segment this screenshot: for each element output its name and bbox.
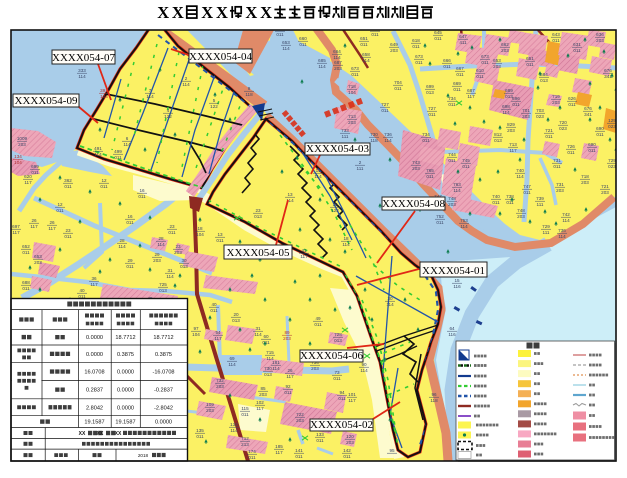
svg-text:011: 011 [567, 150, 575, 155]
svg-text:185: 185 [275, 444, 283, 449]
svg-text:011: 011 [210, 308, 218, 313]
svg-text:26: 26 [31, 218, 37, 223]
svg-text:011: 011 [552, 38, 560, 43]
svg-text:011: 011 [443, 64, 451, 69]
svg-text:XXXX054-09: XXXX054-09 [15, 95, 78, 107]
svg-text:16: 16 [127, 214, 133, 219]
svg-text:0.0000: 0.0000 [155, 420, 172, 426]
svg-text:203: 203 [556, 188, 564, 193]
svg-text:116: 116 [453, 284, 461, 289]
svg-text:20: 20 [233, 312, 239, 317]
svg-text:X: X [245, 3, 257, 22]
svg-text:011: 011 [343, 454, 351, 459]
svg-text:011: 011 [568, 102, 576, 107]
svg-text:731: 731 [556, 182, 564, 187]
svg-text:701: 701 [522, 108, 530, 113]
svg-text:011: 011 [241, 412, 249, 417]
svg-text:30: 30 [181, 258, 187, 263]
svg-text:181: 181 [272, 360, 280, 365]
svg-text:114: 114 [118, 244, 126, 249]
svg-text:117: 117 [48, 226, 56, 231]
svg-text:117: 117 [12, 230, 20, 235]
svg-text:011: 011 [276, 32, 284, 37]
svg-text:117: 117 [348, 398, 356, 403]
svg-text:651: 651 [526, 56, 534, 61]
svg-text:011: 011 [299, 42, 307, 47]
svg-text:740: 740 [492, 194, 500, 199]
svg-text:011: 011 [196, 434, 204, 439]
svg-text:203: 203 [552, 100, 560, 105]
svg-text:660: 660 [299, 36, 307, 41]
svg-text:011: 011 [284, 390, 292, 395]
svg-text:713: 713 [348, 114, 356, 119]
svg-text:0.3875: 0.3875 [155, 352, 172, 358]
svg-text:718: 718 [581, 174, 589, 179]
svg-text:712: 712 [241, 436, 249, 441]
svg-text:411: 411 [459, 40, 467, 45]
svg-text:688: 688 [22, 280, 30, 285]
svg-text:31: 31 [255, 326, 261, 331]
svg-text:114: 114 [386, 302, 394, 307]
svg-text:203: 203 [18, 142, 26, 147]
svg-text:26: 26 [49, 220, 55, 225]
svg-text:114: 114 [360, 368, 368, 373]
svg-text:18.7712: 18.7712 [115, 335, 135, 341]
svg-text:647: 647 [459, 34, 467, 39]
svg-text:699: 699 [426, 84, 434, 89]
svg-text:744: 744 [448, 152, 456, 157]
svg-text:011: 011 [394, 86, 402, 91]
svg-text:96: 96 [431, 392, 437, 397]
svg-text:704: 704 [394, 80, 402, 85]
svg-text:203: 203 [259, 392, 267, 397]
svg-text:651: 651 [360, 36, 368, 41]
svg-text:341: 341 [584, 112, 592, 117]
svg-text:41: 41 [301, 248, 307, 253]
svg-text:60: 60 [263, 334, 269, 339]
svg-text:011: 011 [453, 87, 461, 92]
svg-text:011: 011 [114, 155, 122, 160]
svg-text:013: 013 [264, 372, 272, 377]
svg-text:0.0000: 0.0000 [86, 352, 103, 358]
svg-text:013: 013 [232, 318, 240, 323]
svg-text:111: 111 [543, 230, 550, 235]
svg-text:X: X [157, 3, 169, 22]
svg-text:636: 636 [596, 32, 604, 37]
svg-text:114: 114 [228, 362, 236, 367]
svg-text:011: 011 [126, 220, 134, 225]
svg-text:118: 118 [245, 92, 253, 97]
svg-text:28: 28 [158, 236, 164, 241]
svg-text:013: 013 [180, 264, 188, 269]
svg-text:114: 114 [94, 152, 102, 157]
svg-text:731: 731 [553, 158, 561, 163]
svg-text:117: 117 [275, 450, 283, 455]
svg-text:203: 203 [153, 258, 161, 263]
svg-text:XXXX054-06: XXXX054-06 [300, 350, 363, 362]
svg-text:011: 011 [22, 286, 30, 291]
svg-text:174: 174 [248, 449, 256, 454]
svg-text:720: 720 [559, 120, 567, 125]
svg-text:2.8042: 2.8042 [86, 405, 103, 411]
svg-text:203: 203 [581, 180, 589, 185]
svg-text:715: 715 [266, 350, 274, 355]
svg-text:011: 011 [448, 102, 456, 107]
svg-text:669: 669 [453, 81, 461, 86]
svg-text:117: 117 [30, 224, 38, 229]
svg-text:XXXX054-01: XXXX054-01 [422, 265, 485, 277]
svg-text:812: 812 [494, 132, 502, 137]
svg-text:12: 12 [101, 178, 107, 183]
svg-text:109: 109 [206, 402, 214, 407]
svg-text:011: 011 [100, 184, 108, 189]
svg-text:673: 673 [481, 54, 489, 59]
svg-text:011: 011 [476, 74, 484, 79]
svg-text:95: 95 [389, 448, 395, 453]
svg-text:740: 740 [516, 168, 524, 173]
svg-text:122: 122 [210, 104, 218, 109]
svg-text:742: 742 [562, 212, 570, 217]
svg-text:19.1587: 19.1587 [115, 420, 135, 426]
svg-text:203: 203 [522, 114, 530, 119]
svg-text:753: 753 [460, 218, 468, 223]
svg-text:729: 729 [608, 158, 616, 163]
svg-text:117: 117 [256, 406, 264, 411]
svg-text:748: 748 [448, 196, 456, 201]
svg-text:011: 011 [295, 454, 303, 459]
svg-text:011: 011 [434, 36, 442, 41]
svg-text:0.0000: 0.0000 [117, 405, 134, 411]
svg-text:114: 114 [182, 82, 190, 87]
svg-text:499: 499 [114, 149, 122, 154]
svg-text:117: 117 [286, 374, 294, 379]
svg-text:011: 011 [512, 102, 520, 107]
svg-text:690: 690 [596, 126, 604, 131]
svg-text:16.0708: 16.0708 [84, 370, 104, 376]
svg-text:XXXX054-02: XXXX054-02 [310, 419, 373, 431]
svg-text:114: 114 [453, 188, 461, 193]
svg-text:023: 023 [608, 164, 616, 169]
svg-text:011: 011 [448, 158, 456, 163]
svg-text:114: 114 [502, 110, 510, 115]
svg-text:0.0000: 0.0000 [86, 335, 103, 341]
svg-text:0.2837: 0.2837 [86, 388, 103, 394]
svg-text:29: 29 [154, 252, 160, 257]
svg-text:011: 011 [481, 60, 489, 65]
svg-text:011: 011 [22, 250, 30, 255]
svg-text:19.1587: 19.1587 [84, 420, 104, 426]
svg-text:117: 117 [300, 254, 308, 259]
svg-text:491: 491 [94, 146, 102, 151]
svg-text:673: 673 [415, 54, 423, 59]
svg-text:XXXX054-07: XXXX054-07 [52, 52, 115, 64]
svg-text:111: 111 [342, 134, 349, 139]
svg-text:104: 104 [192, 332, 200, 337]
svg-text:203: 203 [334, 66, 342, 71]
svg-text:763: 763 [453, 182, 461, 187]
svg-text:667: 667 [456, 66, 464, 71]
svg-text:15: 15 [332, 202, 338, 207]
svg-text:XX: XX [115, 431, 122, 437]
svg-text:114: 114 [314, 174, 322, 179]
svg-text:011: 011 [506, 200, 514, 205]
svg-text:13: 13 [217, 232, 223, 237]
svg-text:743: 743 [412, 160, 420, 165]
svg-text:7: 7 [149, 88, 152, 93]
svg-text:013: 013 [494, 138, 502, 143]
svg-text:13: 13 [287, 192, 293, 197]
svg-text:203: 203 [517, 214, 525, 219]
svg-text:49: 49 [315, 316, 321, 321]
svg-text:97: 97 [193, 326, 199, 331]
svg-text:X: X [260, 3, 272, 22]
svg-text:203: 203 [596, 38, 604, 43]
svg-text:40: 40 [79, 288, 85, 293]
svg-text:203: 203 [448, 202, 456, 207]
svg-text:011: 011 [428, 112, 436, 117]
svg-text:734: 734 [422, 132, 430, 137]
svg-text:28: 28 [119, 238, 125, 243]
svg-text:698: 698 [502, 104, 510, 109]
svg-text:36: 36 [91, 276, 97, 281]
svg-text:114: 114 [318, 64, 326, 69]
svg-text:134: 134 [14, 154, 22, 159]
svg-text:9: 9 [248, 86, 251, 91]
svg-text:X: X [172, 3, 184, 22]
svg-text:23: 23 [65, 228, 71, 233]
svg-text:685: 685 [318, 58, 326, 63]
svg-text:203: 203 [346, 440, 354, 445]
svg-text:118: 118 [430, 398, 438, 403]
svg-text:719: 719 [552, 94, 560, 99]
svg-text:114: 114 [460, 224, 468, 229]
svg-text:713: 713 [509, 142, 517, 147]
svg-text:011: 011 [31, 170, 39, 175]
svg-text:203: 203 [311, 366, 319, 371]
svg-text:114: 114 [272, 366, 280, 371]
svg-text:114: 114 [342, 242, 350, 247]
svg-text:18: 18 [197, 226, 203, 231]
svg-text:023: 023 [536, 114, 544, 119]
svg-text:203: 203 [296, 418, 304, 423]
svg-text:011: 011 [492, 200, 500, 205]
svg-text:011: 011 [526, 62, 534, 67]
svg-text:120: 120 [346, 434, 354, 439]
svg-text:114: 114 [230, 428, 238, 433]
svg-text:117: 117 [467, 94, 475, 99]
svg-text:362: 362 [64, 178, 72, 183]
svg-text:011: 011 [415, 60, 423, 65]
svg-text:102: 102 [256, 400, 264, 405]
svg-text:104: 104 [14, 160, 22, 165]
svg-text:738: 738 [506, 194, 514, 199]
svg-text:203: 203 [34, 260, 42, 265]
svg-text:652: 652 [22, 244, 30, 249]
svg-text:2018: 2018 [138, 453, 149, 458]
svg-text:114: 114 [282, 46, 290, 51]
svg-text:203: 203 [507, 128, 515, 133]
svg-text:203: 203 [206, 408, 214, 413]
svg-text:92: 92 [285, 384, 291, 389]
svg-text:013: 013 [159, 288, 167, 293]
svg-text:745: 745 [462, 158, 470, 163]
svg-text:011: 011 [462, 164, 470, 169]
svg-text:726: 726 [567, 144, 575, 149]
svg-text:023: 023 [559, 126, 567, 131]
svg-text:114: 114 [254, 332, 262, 337]
svg-text:114: 114 [123, 142, 131, 147]
svg-text:690: 690 [588, 142, 596, 147]
svg-text:12: 12 [57, 202, 63, 207]
svg-text:747: 747 [523, 184, 531, 189]
svg-text:013: 013 [426, 90, 434, 95]
svg-text:736: 736 [558, 228, 566, 233]
svg-text:653: 653 [282, 40, 290, 45]
svg-text:64: 64 [449, 326, 455, 331]
svg-text:011: 011 [553, 164, 561, 169]
svg-text:697: 697 [12, 224, 20, 229]
svg-text:011: 011 [426, 174, 434, 179]
svg-text:733: 733 [341, 128, 349, 133]
svg-text:703: 703 [536, 108, 544, 113]
svg-text:765: 765 [426, 168, 434, 173]
svg-text:203: 203 [412, 166, 420, 171]
svg-text:XXXX054-03: XXXX054-03 [306, 143, 369, 155]
svg-text:643: 643 [552, 32, 560, 37]
svg-text:727: 727 [381, 102, 389, 107]
svg-text:30: 30 [387, 296, 393, 301]
svg-text:XX: XX [79, 431, 86, 437]
svg-text:5: 5 [213, 98, 216, 103]
svg-text:689: 689 [505, 88, 513, 93]
svg-text:4: 4 [167, 108, 170, 113]
svg-text:687: 687 [334, 60, 342, 65]
svg-text:135: 135 [196, 428, 204, 433]
svg-text:94: 94 [339, 390, 345, 395]
svg-text:011: 011 [314, 322, 322, 327]
svg-text:26: 26 [287, 368, 293, 373]
svg-text:X: X [216, 3, 228, 22]
svg-text:-16.0708: -16.0708 [152, 370, 174, 376]
svg-text:752: 752 [436, 214, 444, 219]
svg-text:40: 40 [211, 302, 217, 307]
svg-text:725: 725 [159, 282, 167, 287]
svg-text:011: 011 [64, 234, 72, 239]
svg-text:730: 730 [370, 132, 378, 137]
svg-text:626: 626 [568, 96, 576, 101]
svg-text:0.0000: 0.0000 [117, 388, 134, 394]
svg-text:696: 696 [512, 96, 520, 101]
svg-text:653: 653 [493, 58, 501, 63]
svg-text:23: 23 [255, 208, 261, 213]
svg-text:0.0000: 0.0000 [117, 370, 134, 376]
svg-text:0.3875: 0.3875 [117, 352, 134, 358]
svg-text:631: 631 [573, 42, 581, 47]
svg-text:203: 203 [174, 250, 182, 255]
svg-text:649: 649 [390, 42, 398, 47]
svg-text:122: 122 [164, 114, 172, 119]
svg-text:54: 54 [215, 330, 221, 335]
svg-text:727: 727 [428, 106, 436, 111]
svg-text:011: 011 [573, 48, 581, 53]
svg-text:664: 664 [333, 49, 341, 54]
svg-text:1009: 1009 [17, 136, 28, 141]
svg-text:203: 203 [390, 48, 398, 53]
svg-text:011: 011 [351, 72, 359, 77]
svg-text:-0.2837: -0.2837 [154, 388, 173, 394]
svg-text:73: 73 [334, 370, 340, 375]
svg-text:X: X [201, 3, 213, 22]
svg-text:203: 203 [348, 120, 356, 125]
svg-text:114: 114 [166, 274, 174, 279]
svg-text:333: 333 [78, 68, 86, 73]
svg-text:134: 134 [230, 422, 238, 427]
svg-text:104: 104 [348, 90, 356, 95]
svg-text:90: 90 [361, 362, 367, 367]
svg-text:011: 011 [216, 238, 224, 243]
svg-text:722: 722 [296, 412, 304, 417]
svg-text:122: 122 [331, 208, 339, 213]
svg-text:2: 2 [185, 76, 188, 81]
svg-text:620: 620 [24, 174, 32, 179]
svg-text:203: 203 [501, 48, 509, 53]
svg-text:117: 117 [214, 336, 222, 341]
svg-text:2: 2 [359, 160, 362, 165]
svg-text:117: 117 [509, 148, 517, 153]
svg-text:203: 203 [283, 336, 291, 341]
svg-text:XXXX054-05: XXXX054-05 [227, 247, 290, 259]
svg-text:104: 104 [100, 94, 108, 99]
svg-text:011: 011 [168, 230, 176, 235]
svg-text:6: 6 [126, 136, 129, 141]
svg-text:011: 011 [422, 138, 430, 143]
svg-text:115: 115 [241, 406, 249, 411]
svg-text:23: 23 [175, 244, 181, 249]
svg-text:133: 133 [316, 432, 324, 437]
svg-text:16: 16 [139, 188, 145, 193]
svg-text:203: 203 [216, 384, 224, 389]
svg-text:666: 666 [443, 58, 451, 63]
svg-text:013: 013 [540, 78, 548, 83]
svg-text:734: 734 [448, 96, 456, 101]
svg-text:011: 011 [456, 72, 464, 77]
svg-text:736: 736 [384, 132, 392, 137]
svg-text:011: 011 [523, 190, 531, 195]
svg-text:118: 118 [370, 138, 378, 143]
svg-text:114: 114 [157, 242, 165, 247]
svg-text:114: 114 [362, 58, 370, 63]
svg-text:142: 142 [343, 448, 351, 453]
svg-text:011: 011 [545, 134, 553, 139]
svg-text:15: 15 [454, 278, 460, 283]
svg-text:29: 29 [127, 258, 133, 263]
svg-text:69: 69 [229, 356, 235, 361]
svg-text:XXXX054-04: XXXX054-04 [189, 51, 252, 63]
svg-text:013: 013 [334, 338, 342, 343]
svg-text:829: 829 [507, 122, 515, 127]
svg-text:662: 662 [501, 42, 509, 47]
svg-text:XXXX054-08: XXXX054-08 [382, 198, 445, 210]
svg-text:85: 85 [260, 386, 266, 391]
svg-text:610: 610 [476, 68, 484, 73]
svg-text:116: 116 [448, 332, 456, 337]
svg-text:618: 618 [412, 38, 420, 43]
svg-text:011: 011 [596, 132, 604, 137]
svg-text:011: 011 [126, 264, 134, 269]
svg-text:23: 23 [169, 224, 175, 229]
svg-text:31: 31 [167, 268, 173, 273]
svg-text:721: 721 [545, 128, 553, 133]
